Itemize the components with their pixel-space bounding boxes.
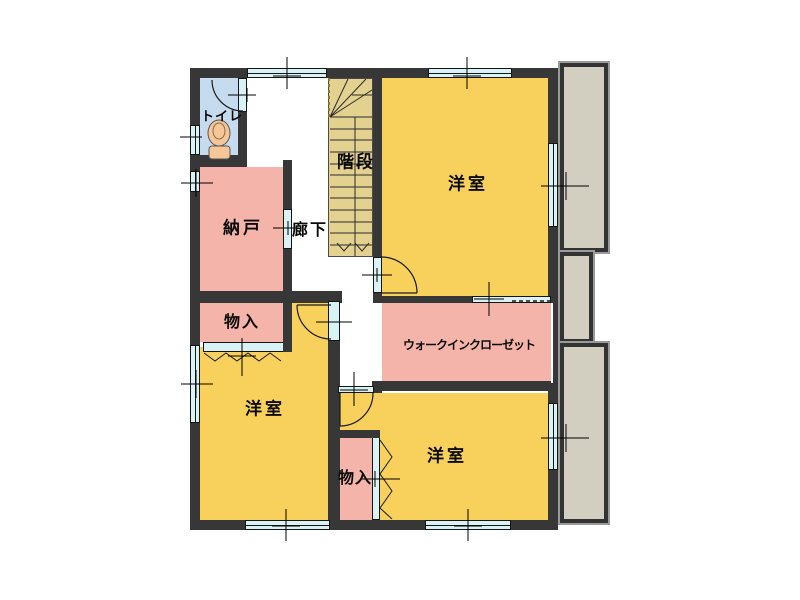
room-closet-nw-label: 物入 — [224, 314, 260, 330]
closet-nw-door — [203, 342, 285, 352]
sliding-door-closet — [472, 296, 551, 303]
window — [428, 68, 512, 78]
closet-s-door — [372, 437, 380, 520]
door-opening-bedroom-ne — [373, 257, 382, 293]
room-bedroom-sw-label: 洋室 — [245, 402, 285, 419]
balcony-middle — [560, 252, 593, 343]
door-opening-bedroom-sw — [328, 301, 340, 341]
window — [190, 345, 200, 423]
room-stairs-label: 階段 — [337, 155, 375, 172]
floor-plan: トイレ 納戸 廊下 階段 洋室 ウォークインクローゼット 洋室 洋室 物入 物入 — [0, 0, 800, 600]
balcony-south — [560, 343, 608, 523]
room-bedroom-ne-label: 洋室 — [448, 177, 488, 194]
window — [548, 403, 558, 470]
room-bedroom-se-label: 洋室 — [427, 449, 467, 466]
wall — [382, 296, 472, 303]
window — [190, 171, 200, 192]
wall — [200, 155, 247, 167]
wall — [553, 303, 558, 383]
room-walk-in-closet-label: ウォークインクローゼット — [403, 339, 535, 351]
wall — [372, 381, 551, 391]
room-bedroom-sw — [200, 347, 328, 520]
wall — [190, 291, 342, 303]
window — [548, 143, 558, 227]
window — [190, 125, 200, 155]
door-opening-bedroom-se — [338, 386, 374, 393]
room-storage-label: 納戸 — [223, 221, 263, 238]
room-toilet-label: トイレ — [201, 111, 243, 124]
wall — [283, 303, 292, 352]
room-hallway-label: 廊下 — [292, 222, 328, 238]
room-closet-s-label: 物入 — [338, 470, 372, 486]
door-opening-toilet — [238, 78, 247, 112]
door-opening-storage — [283, 209, 292, 249]
wall — [328, 430, 380, 438]
room-bedroom-sw-notch — [292, 303, 328, 352]
balcony-north — [560, 63, 608, 252]
window — [425, 520, 511, 530]
window — [247, 68, 327, 78]
window — [245, 520, 330, 530]
